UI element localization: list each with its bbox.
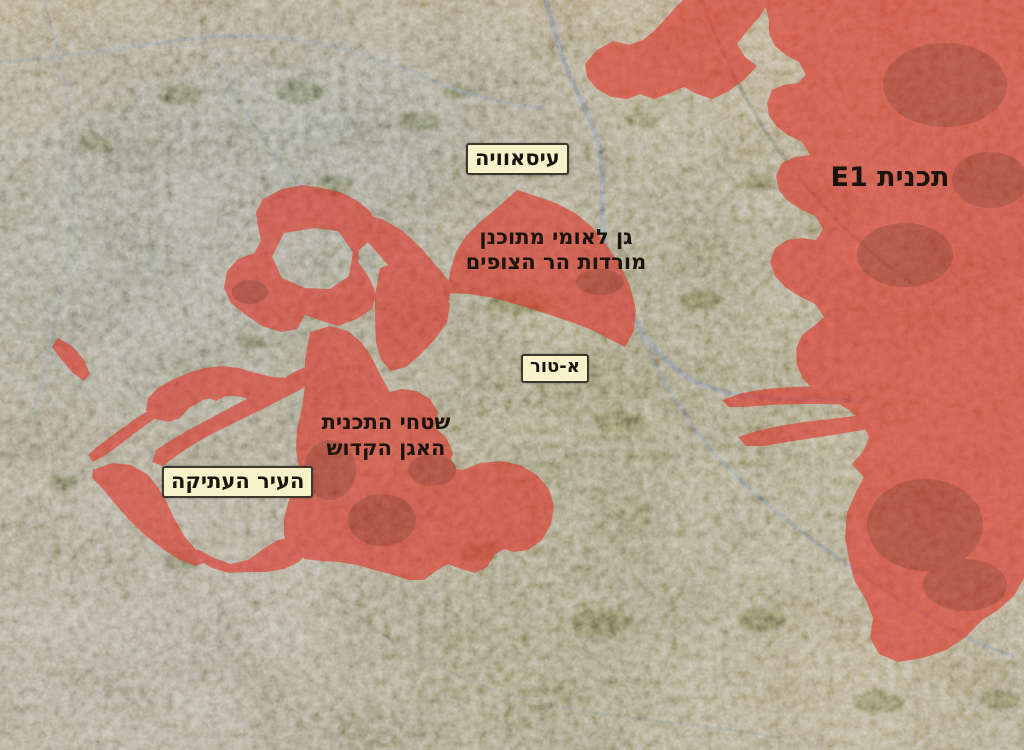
label-holy-basin: שטחי התכנית האגן הקדוש — [300, 409, 472, 461]
label-national-park-line2: מורדות הר הצופים — [450, 250, 662, 275]
satellite-map-canvas — [0, 0, 1024, 750]
label-national-park: גן לאומי מתוכנן מורדות הר הצופים — [450, 225, 662, 275]
label-holy-basin-line2: האגן הקדוש — [300, 435, 472, 461]
label-issawiya: עיסאוויה — [466, 143, 569, 175]
label-holy-basin-line1: שטחי התכנית — [300, 409, 472, 435]
satellite-map: עיסאוויה תכנית E1 גן לאומי מתוכנן מורדות… — [0, 0, 1024, 750]
label-national-park-line1: גן לאומי מתוכנן — [450, 225, 662, 250]
label-e1-plan: תכנית E1 — [805, 162, 975, 193]
label-a-tur: א-טור — [521, 354, 589, 383]
label-old-city: העיר העתיקה — [162, 466, 313, 498]
